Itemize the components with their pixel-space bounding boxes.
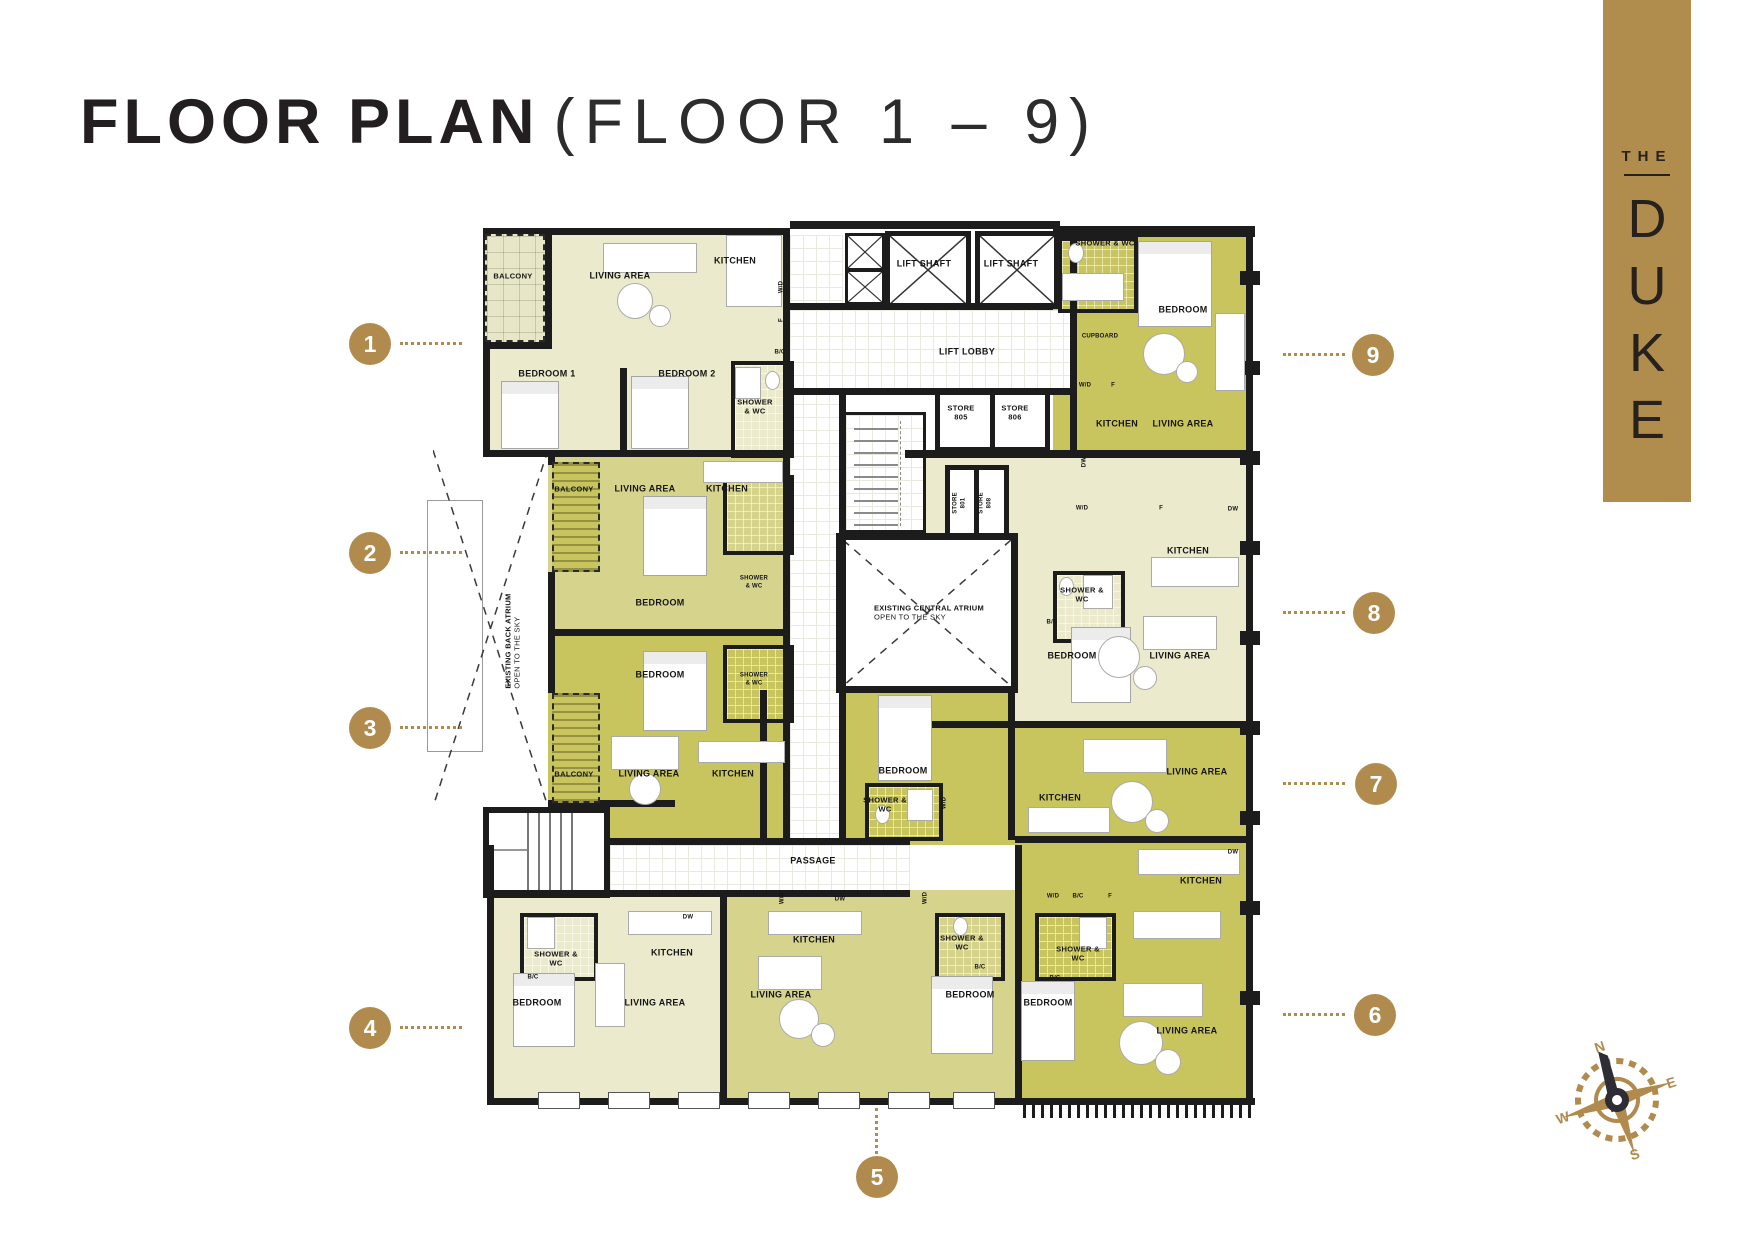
window	[953, 1092, 995, 1109]
room-label-bedroom: BEDROOM	[635, 669, 684, 680]
shower-tray	[735, 367, 761, 399]
appliance-label-wd: W/D	[1079, 382, 1091, 390]
page: { "title": { "main": "FLOOR PLAN", "sub"…	[0, 0, 1754, 1240]
wall	[790, 221, 1060, 229]
room-label-bedroom: BEDROOM	[512, 997, 561, 1008]
side-table	[1155, 1049, 1181, 1075]
wall	[720, 897, 727, 1105]
wall	[483, 450, 788, 457]
brand-letter-e: E	[1603, 387, 1691, 454]
room-label-balcony: BALCONY	[554, 484, 593, 493]
compass-e: E	[1664, 1073, 1678, 1091]
room-label-kitchen: KITCHEN	[1039, 792, 1081, 803]
room-label-living-area: LIVING AREA	[1167, 766, 1228, 777]
wall	[620, 368, 627, 450]
window	[538, 1092, 580, 1109]
room-label-lift-shaft: LIFT SHAFT	[897, 258, 952, 269]
wall	[483, 342, 552, 349]
wall	[905, 721, 1253, 728]
leader-line-7	[1283, 782, 1345, 785]
appliance-label-bc: B/C	[528, 974, 539, 982]
apartment-marker-6: 6	[1354, 994, 1396, 1036]
wall-stub	[1240, 631, 1260, 645]
room-label-store-806: STORE 806	[996, 404, 1034, 423]
appliance-label-f: F	[1111, 382, 1115, 390]
appliance-label-wd: W/D	[779, 892, 787, 904]
sofa	[758, 956, 822, 990]
room-label-living-area: LIVING AREA	[619, 768, 680, 779]
appliance-label-wd: W/D	[1047, 893, 1059, 901]
room-label-kitchen: KITCHEN	[714, 255, 756, 266]
appliance-label-bc: B/C	[775, 349, 786, 357]
room-label-store-801: STORE 801	[953, 486, 968, 520]
leader-line-5	[875, 1108, 878, 1154]
wall	[548, 572, 555, 693]
armchair	[617, 283, 653, 319]
shower-tray	[1062, 273, 1124, 301]
window	[678, 1092, 720, 1109]
appliance-label-dw: DW	[835, 896, 845, 904]
room-label-passage: PASSAGE	[790, 855, 835, 866]
room-label-living-area: LIVING AREA	[1150, 650, 1211, 661]
brand-letter-u: U	[1603, 253, 1691, 320]
room-label-bedroom-2: BEDROOM 2	[658, 368, 715, 379]
window	[888, 1092, 930, 1109]
wall	[1015, 836, 1253, 843]
room-label-shower-wc: SHOWER & WC	[528, 950, 584, 969]
room-label-living-area: LIVING AREA	[590, 270, 651, 281]
wall	[610, 838, 910, 845]
appliance-label-dw: DW	[683, 914, 693, 922]
wall	[487, 1098, 1255, 1105]
sofa	[1143, 616, 1217, 650]
room-label-kitchen: KITCHEN	[1096, 418, 1138, 429]
leader-line-9	[1283, 353, 1345, 356]
bed	[643, 651, 707, 731]
title-sub: (FLOOR 1 – 9)	[553, 87, 1100, 157]
kitchen-counter	[1138, 849, 1240, 875]
room-label-balcony: BALCONY	[554, 769, 593, 778]
wall	[487, 890, 910, 897]
sofa	[603, 243, 697, 273]
side-table	[1176, 361, 1198, 383]
central-atrium-label: EXISTING CENTRAL ATRIUM OPEN TO THE SKY	[874, 604, 984, 623]
bed	[513, 973, 575, 1047]
sofa	[611, 736, 679, 770]
apartment-marker-9: 9	[1352, 334, 1394, 376]
wall	[790, 388, 1073, 395]
brand-the: THE	[1603, 0, 1691, 165]
bed	[1021, 981, 1075, 1061]
wall-stub	[1240, 811, 1260, 825]
passage-floor	[610, 845, 910, 890]
wall	[905, 450, 1253, 458]
lift-shaft-1	[885, 231, 971, 309]
sofa	[1083, 739, 1167, 773]
wall	[1008, 690, 1015, 840]
balcony-rail	[1023, 1105, 1253, 1118]
sofa	[1123, 983, 1203, 1017]
lift-shaft-2	[975, 231, 1059, 309]
apartment-marker-5: 5	[856, 1156, 898, 1198]
bed	[643, 496, 707, 576]
kitchen-counter	[1028, 807, 1110, 833]
wall-stub	[1240, 901, 1260, 915]
room-label-kitchen: KITCHEN	[793, 934, 835, 945]
appliance-label-wd: W/D	[941, 797, 949, 809]
apartment-marker-1: 1	[349, 323, 391, 365]
back-atrium-dashes	[433, 450, 548, 807]
room-label-living-area: LIVING AREA	[751, 989, 812, 1000]
wall	[760, 690, 767, 845]
room-label-bedroom: BEDROOM	[635, 597, 684, 608]
room-label-bedroom: BEDROOM	[1158, 304, 1207, 315]
shower-tray	[527, 917, 555, 949]
room-label-kitchen: KITCHEN	[1180, 875, 1222, 886]
room-label-kitchen: KITCHEN	[651, 947, 693, 958]
room-label-kitchen: KITCHEN	[712, 768, 754, 779]
title-main: FLOOR PLAN	[80, 87, 539, 157]
back-atrium-line1: EXISTING BACK ATRIUM	[504, 593, 513, 688]
wall	[548, 629, 788, 636]
wall-stub	[1240, 451, 1260, 465]
room-label-shower-wc: SHOWER & WC	[857, 796, 913, 815]
bed	[501, 381, 559, 449]
toilet	[765, 371, 780, 390]
brand-banner: THE D U K E	[1603, 0, 1691, 502]
apartment-marker-7: 7	[1355, 763, 1397, 805]
balcony-3	[552, 693, 600, 803]
leader-line-4	[400, 1026, 462, 1029]
appliance-label-bc: B/C	[1047, 619, 1058, 627]
wall	[1053, 226, 1255, 237]
room-label-living-area: LIVING AREA	[625, 997, 686, 1008]
side-table	[1145, 809, 1169, 833]
central-atrium-line1: EXISTING CENTRAL ATRIUM	[874, 604, 984, 613]
balcony-1	[485, 234, 545, 342]
leader-line-8	[1283, 611, 1345, 614]
wall	[1015, 845, 1022, 1105]
kitchen-counter	[1151, 557, 1239, 587]
leader-line-2	[400, 551, 462, 554]
room-label-store-805: STORE 805	[942, 404, 980, 423]
appliance-label-wd: W/D	[778, 281, 786, 293]
riser-duct	[845, 269, 885, 305]
appliance-label-bc: B/C	[975, 964, 986, 972]
bed	[931, 976, 993, 1054]
floor-plan: BALCONY LIVING AREA KITCHEN BEDROOM 1 BE…	[483, 221, 1255, 1126]
apartment-marker-8: 8	[1353, 592, 1395, 634]
room-label-shower-wc: SHOWER & WC	[934, 934, 990, 953]
room-label-cupboard: CUPBOARD	[1082, 333, 1118, 341]
brand-letter-d: D	[1603, 186, 1691, 253]
stairwell-back	[483, 807, 610, 898]
room-label-kitchen: KITCHEN	[1167, 545, 1209, 556]
appliance-label-f: F	[778, 318, 786, 322]
balcony-2	[552, 462, 600, 572]
window	[748, 1092, 790, 1109]
sofa	[1215, 313, 1245, 391]
room-label-bedroom: BEDROOM	[945, 989, 994, 1000]
apartment-marker-2: 2	[349, 532, 391, 574]
room-label-shower-wc: SHOWER & WC	[1050, 945, 1106, 964]
wall	[487, 845, 494, 1105]
wall-stub	[1240, 541, 1260, 555]
appliance-label-dw: DW	[1228, 849, 1238, 857]
window	[608, 1092, 650, 1109]
appliance-label-wd: W/D	[922, 892, 930, 904]
wall	[545, 232, 552, 346]
appliance-label-bc: B/C	[1073, 893, 1084, 901]
brand-rule	[1624, 174, 1670, 176]
stairwell-central	[843, 412, 926, 533]
leader-line-1	[400, 342, 462, 345]
room-label-lift-lobby: LIFT LOBBY	[939, 346, 995, 357]
brand-letter-k: K	[1603, 320, 1691, 387]
page-title: FLOOR PLAN(FLOOR 1 – 9)	[80, 86, 1100, 158]
kitchen-counter	[768, 911, 862, 935]
appliance-label-dw: DW	[1228, 506, 1238, 514]
room-label-living-area: LIVING AREA	[1157, 1025, 1218, 1036]
side-table	[649, 305, 671, 327]
room-label-living-area: LIVING AREA	[1153, 418, 1214, 429]
room-label-bedroom: BEDROOM	[1047, 650, 1096, 661]
room-label-kitchen: KITCHEN	[706, 483, 748, 494]
central-atrium-line2: OPEN TO THE SKY	[874, 613, 984, 622]
kitchen-island	[1133, 911, 1221, 939]
room-label-shower-wc: SHOWER & WC	[1075, 238, 1135, 247]
appliance-label-f: F	[1159, 505, 1163, 513]
kitchen-counter	[703, 461, 783, 483]
kitchen-counter	[726, 235, 782, 307]
sofa	[595, 963, 625, 1027]
room-label-shower-wc: SHOWER & WC	[737, 398, 773, 417]
room-label-bedroom: BEDROOM	[1023, 997, 1072, 1008]
room-label-shower-wc: SHOWER & WC	[739, 673, 769, 688]
compass-n: N	[1592, 1038, 1607, 1056]
appliance-label-dw: DW	[1081, 457, 1089, 467]
compass-rose: N E S W	[1552, 1035, 1682, 1165]
appliance-label-f: F	[1108, 893, 1112, 901]
apartment-marker-3: 3	[349, 707, 391, 749]
apartment-marker-4: 4	[349, 1007, 391, 1049]
room-label-lift-shaft: LIFT SHAFT	[984, 258, 1039, 269]
compass-w: W	[1554, 1108, 1572, 1128]
lift-lobby-floor	[790, 310, 1073, 395]
riser-duct	[845, 233, 885, 271]
compass-s: S	[1628, 1145, 1642, 1163]
kitchen-counter	[698, 741, 785, 763]
side-table	[1133, 666, 1157, 690]
bed	[631, 376, 689, 449]
room-label-balcony: BALCONY	[493, 271, 532, 280]
window	[818, 1092, 860, 1109]
wall	[1070, 310, 1077, 455]
side-table	[811, 1023, 835, 1047]
wall-stub	[1240, 991, 1260, 1005]
leader-line-6	[1283, 1013, 1345, 1016]
room-label-bedroom: BEDROOM	[878, 765, 927, 776]
wall	[790, 303, 1053, 310]
back-atrium-line2: OPEN TO THE SKY	[513, 593, 522, 688]
wall-stub	[1240, 271, 1260, 285]
room-label-living-area: LIVING AREA	[615, 483, 676, 494]
kitchen-counter	[628, 911, 712, 935]
room-label-store-808: STORE 808	[979, 486, 994, 520]
appliance-label-wd: W/D	[1076, 505, 1088, 513]
room-label-bedroom-1: BEDROOM 1	[518, 368, 575, 379]
wall	[839, 395, 846, 845]
room-label-shower-wc: SHOWER & WC	[1054, 586, 1110, 605]
back-atrium-label: EXISTING BACK ATRIUM OPEN TO THE SKY	[504, 593, 523, 688]
leader-line-3	[400, 726, 462, 729]
wall-stub	[1240, 721, 1260, 735]
room-label-shower-wc: SHOWER & WC	[739, 576, 769, 591]
appliance-label-bc: B/C	[1050, 975, 1061, 983]
